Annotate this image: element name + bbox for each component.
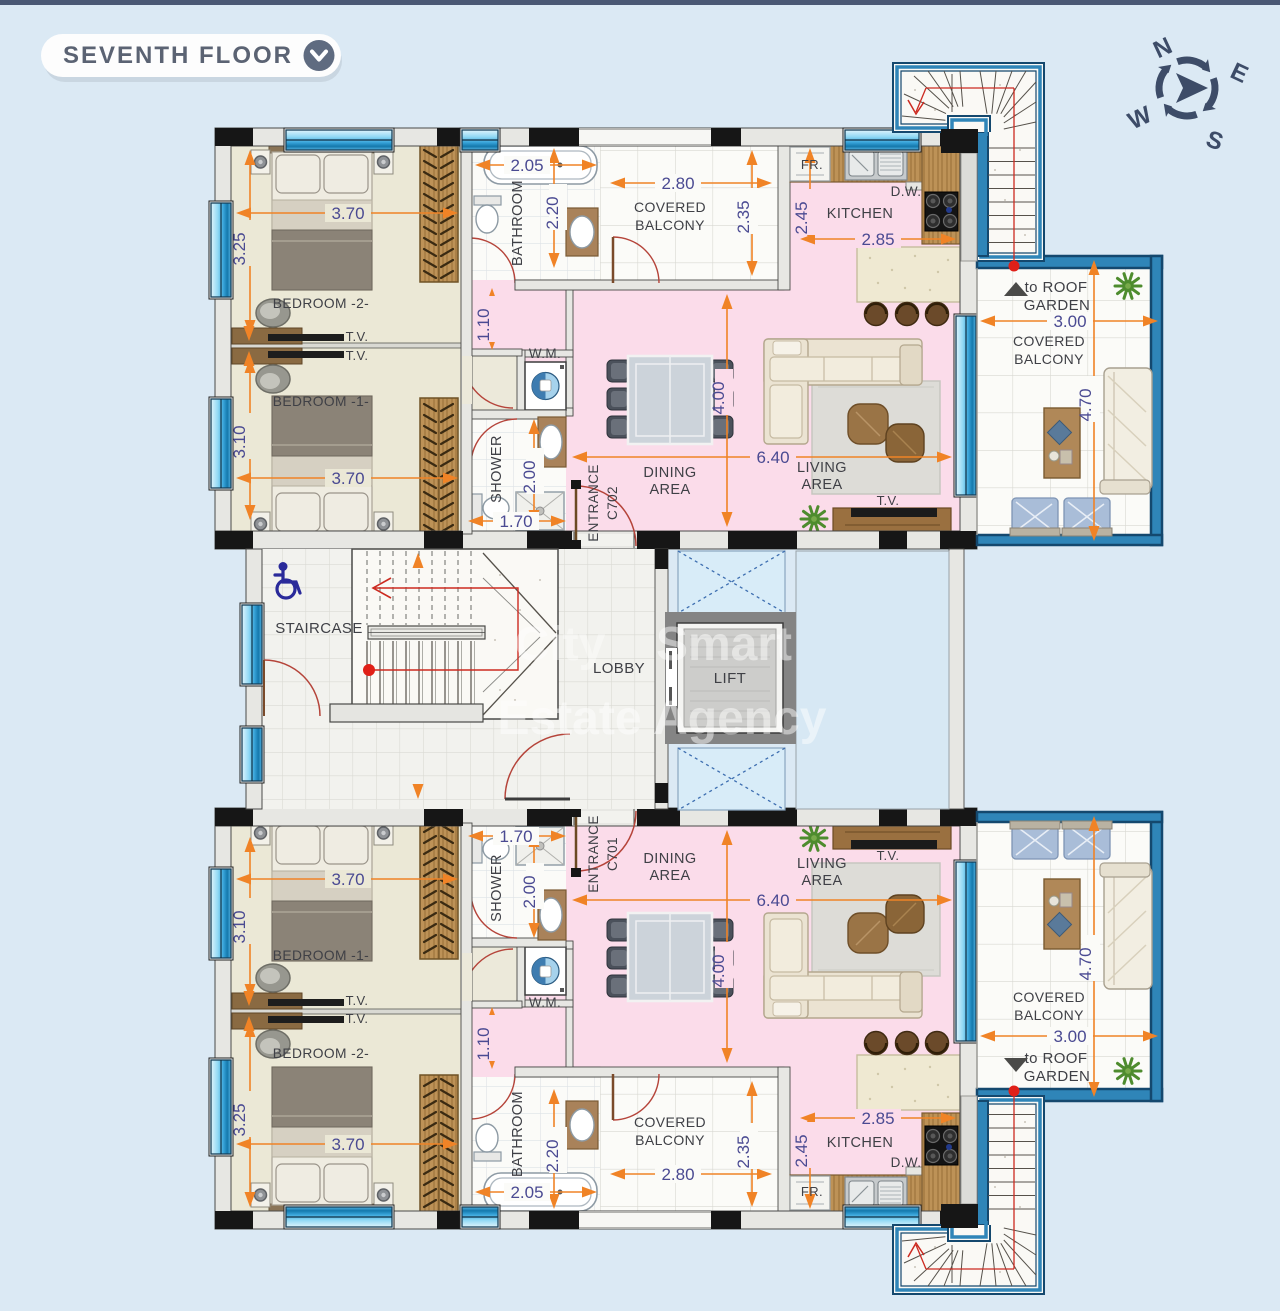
svg-text:2.35: 2.35 <box>734 200 753 233</box>
svg-text:BALCONY: BALCONY <box>635 217 705 233</box>
svg-text:4.70: 4.70 <box>1076 388 1095 421</box>
svg-text:to ROOF: to ROOF <box>1025 279 1088 296</box>
svg-text:BEDROOM -2-: BEDROOM -2- <box>273 296 369 311</box>
svg-text:GARDEN: GARDEN <box>1024 1068 1091 1085</box>
svg-text:3.25: 3.25 <box>230 232 249 265</box>
svg-text:COVERED: COVERED <box>634 199 706 215</box>
svg-text:KITCHEN: KITCHEN <box>827 1135 893 1151</box>
svg-text:T.V.: T.V. <box>346 329 369 344</box>
svg-text:1.10: 1.10 <box>474 308 493 341</box>
svg-text:LIFT: LIFT <box>714 670 746 687</box>
svg-text:COVERED: COVERED <box>634 1114 706 1130</box>
svg-text:2.80: 2.80 <box>661 1165 694 1184</box>
svg-text:1.70: 1.70 <box>499 827 532 846</box>
svg-text:C701: C701 <box>605 837 620 871</box>
svg-text:SHOWER: SHOWER <box>489 435 505 503</box>
svg-text:AREA: AREA <box>801 477 842 493</box>
svg-text:COVERED: COVERED <box>1013 333 1085 349</box>
svg-text:STAIRCASE: STAIRCASE <box>275 620 363 637</box>
svg-text:BEDROOM -2-: BEDROOM -2- <box>273 1046 369 1061</box>
svg-text:2.45: 2.45 <box>792 201 811 234</box>
svg-text:3.70: 3.70 <box>331 204 364 223</box>
svg-text:AREA: AREA <box>649 868 690 884</box>
svg-text:3.25: 3.25 <box>230 1103 249 1136</box>
svg-text:LIVING: LIVING <box>797 460 847 476</box>
svg-text:BATHROOM: BATHROOM <box>510 1091 526 1177</box>
svg-text:3.00: 3.00 <box>1053 1027 1086 1046</box>
svg-text:W.M.: W.M. <box>529 346 561 361</box>
svg-text:4.70: 4.70 <box>1076 947 1095 980</box>
svg-text:T.V.: T.V. <box>346 993 369 1008</box>
svg-text:SEVENTH FLOOR: SEVENTH FLOOR <box>63 42 293 69</box>
svg-text:BEDROOM -1-: BEDROOM -1- <box>273 394 369 409</box>
svg-text:2.35: 2.35 <box>734 1135 753 1168</box>
svg-text:2.20: 2.20 <box>543 1139 562 1172</box>
svg-text:AREA: AREA <box>649 482 690 498</box>
svg-text:T.V.: T.V. <box>346 348 369 363</box>
svg-text:6.40: 6.40 <box>756 891 789 910</box>
svg-text:COVERED: COVERED <box>1013 989 1085 1005</box>
svg-text:3.70: 3.70 <box>331 469 364 488</box>
svg-text:D.W.: D.W. <box>891 1155 922 1170</box>
svg-text:2.00: 2.00 <box>520 875 539 908</box>
svg-text:Smart: Smart <box>656 618 792 671</box>
svg-text:2.05: 2.05 <box>510 1183 543 1202</box>
svg-text:DINING: DINING <box>643 465 696 481</box>
svg-text:1.10: 1.10 <box>474 1027 493 1060</box>
svg-text:T.V.: T.V. <box>877 848 900 863</box>
svg-text:4.00: 4.00 <box>709 954 728 987</box>
svg-text:BATHROOM: BATHROOM <box>510 180 526 266</box>
svg-text:BALCONY: BALCONY <box>1014 1007 1084 1023</box>
svg-text:4.00: 4.00 <box>709 381 728 414</box>
svg-text:2.85: 2.85 <box>861 230 894 249</box>
svg-text:2.00: 2.00 <box>520 460 539 493</box>
svg-text:FR.: FR. <box>801 157 823 172</box>
svg-text:ENTRANCE: ENTRANCE <box>586 815 601 892</box>
svg-text:City: City <box>515 618 606 671</box>
svg-text:D.W.: D.W. <box>891 184 922 199</box>
svg-text:to ROOF: to ROOF <box>1025 1050 1088 1067</box>
svg-text:3.10: 3.10 <box>230 910 249 943</box>
svg-text:2.05: 2.05 <box>510 156 543 175</box>
svg-text:AREA: AREA <box>801 873 842 889</box>
svg-text:2.80: 2.80 <box>661 174 694 193</box>
svg-text:2.45: 2.45 <box>792 1134 811 1167</box>
svg-text:Estate Agency: Estate Agency <box>497 692 826 745</box>
svg-text:3.00: 3.00 <box>1053 312 1086 331</box>
svg-text:LIVING: LIVING <box>797 856 847 872</box>
svg-text:1.70: 1.70 <box>499 512 532 531</box>
svg-text:BALCONY: BALCONY <box>635 1132 705 1148</box>
svg-text:SHOWER: SHOWER <box>489 854 505 922</box>
svg-text:2.20: 2.20 <box>543 196 562 229</box>
svg-text:3.70: 3.70 <box>331 870 364 889</box>
svg-text:3.70: 3.70 <box>331 1135 364 1154</box>
svg-text:BALCONY: BALCONY <box>1014 351 1084 367</box>
svg-text:FR.: FR. <box>801 1184 823 1199</box>
svg-text:3.10: 3.10 <box>230 425 249 458</box>
svg-text:C702: C702 <box>605 486 620 520</box>
svg-text:T.V.: T.V. <box>346 1011 369 1026</box>
svg-text:2.85: 2.85 <box>861 1109 894 1128</box>
svg-text:BEDROOM -1-: BEDROOM -1- <box>273 948 369 963</box>
svg-text:W.M.: W.M. <box>529 995 561 1010</box>
svg-text:KITCHEN: KITCHEN <box>827 206 893 222</box>
svg-text:T.V.: T.V. <box>877 493 900 508</box>
svg-text:ENTRANCE: ENTRANCE <box>586 464 601 541</box>
svg-text:6.40: 6.40 <box>756 448 789 467</box>
svg-text:DINING: DINING <box>643 851 696 867</box>
